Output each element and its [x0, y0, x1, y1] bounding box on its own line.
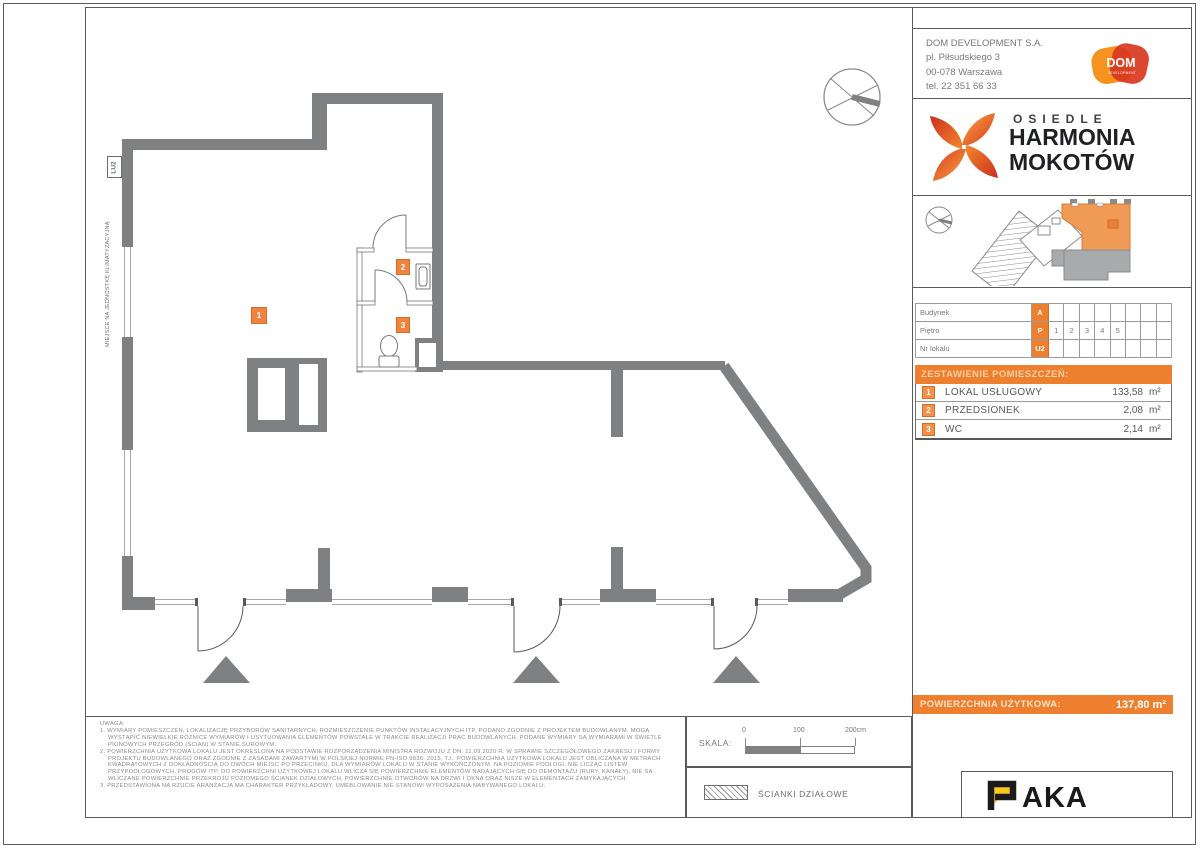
company-contact-block: DOM DEVELOPMENT S.A. pl. Piłsudskiego 3 … [926, 37, 1043, 95]
room-name: WC [945, 424, 1124, 435]
floor-value: P [1032, 322, 1049, 339]
table-row: 1 LOKAL USŁUGOWY 133,58 m² [916, 384, 1171, 402]
note-item: 3. PRZEDSTAWIONA NA RZUCIE ARANŻACJA MA … [100, 783, 677, 790]
scale-tick-200: 200cm [845, 727, 866, 734]
scale-tick-100: 100 [793, 727, 805, 734]
project-name-line2: MOKOTÓW [1009, 149, 1134, 176]
room-number-badge: 1 [922, 386, 935, 399]
site-mini-map [912, 196, 1190, 286]
svg-text:AKA: AKA [1022, 782, 1088, 814]
divider [912, 28, 1192, 29]
room-area: 133,58 [1112, 387, 1143, 398]
room-area: 2,08 [1124, 405, 1143, 416]
company-name: DOM DEVELOPMENT S.A. [926, 37, 1043, 51]
floor-plan-sheet: MIEJSCE NA JEDNOSTKĘ KLIMATYZACYJNĄ LU2 … [0, 0, 1200, 849]
room-name: PRZEDSIONEK [945, 405, 1124, 416]
table-row: Nr lokalu U2 [916, 340, 1172, 358]
company-address-1: pl. Piłsudskiego 3 [926, 51, 1043, 65]
total-area-label: POWIERZCHNIA UŻYTKOWA: [920, 699, 1116, 710]
note-item: 1. WYMIARY POMIESZCZEŃ, LOKALIZACJĘ PRZY… [100, 728, 677, 749]
table-row: 2 PRZEDSIONEK 2,08 m² [916, 402, 1171, 420]
rooms-table: 1 LOKAL USŁUGOWY 133,58 m² 2 PRZEDSIONEK… [915, 384, 1172, 440]
partition-legend-label: ŚCIANKI DZIAŁOWE [758, 789, 848, 799]
room-area-unit: m² [1149, 424, 1171, 435]
company-phone: tel. 22 351 66 33 [926, 80, 1043, 94]
rooms-table-header: ZESTAWIENIE POMIESZCZEŃ: [915, 365, 1172, 384]
scale-tick-mark [800, 738, 801, 746]
scale-tick-0: 0 [742, 727, 746, 734]
mini-north-icon [926, 207, 952, 233]
scale-bar-filled [745, 746, 800, 754]
divider [912, 98, 1192, 99]
room-number-badge: 2 [922, 404, 935, 417]
unit-info-table: Budynek A Piętro P 1 2 3 4 5 Nr lokalu U… [915, 303, 1172, 358]
scale-tick-mark [855, 738, 856, 746]
scale-label: SKALA: [699, 738, 732, 748]
company-address-2: 00-078 Warszawa [926, 66, 1043, 80]
room-area-unit: m² [1149, 387, 1171, 398]
total-area-value: 137,80 m² [1116, 699, 1166, 711]
building-value: A [1032, 304, 1049, 321]
room-area: 2,14 [1124, 424, 1143, 435]
project-name-line1: HARMONIA [1009, 124, 1136, 151]
svg-text:DOM: DOM [1106, 56, 1135, 70]
note-item: 2. POWIERZCHNIA UŻYTKOWA LOKALU JEST OKR… [100, 749, 677, 784]
dom-development-logo: DOM DEVELOPMENT [1088, 40, 1152, 88]
room-number-badge: 3 [922, 423, 935, 436]
scale-bar-empty [800, 746, 855, 754]
scale-tick-mark [745, 738, 746, 746]
table-row: Budynek A [916, 304, 1172, 322]
paka-logo: AKA [980, 776, 1110, 814]
room-area-unit: m² [1149, 405, 1171, 416]
divider [912, 287, 1192, 288]
notes-title: UWAGA: [100, 721, 677, 728]
svg-text:DEVELOPMENT: DEVELOPMENT [1108, 71, 1137, 75]
room-name: LOKAL USŁUGOWY [945, 387, 1112, 398]
partition-hatch-icon [704, 785, 748, 800]
table-row: 3 WC 2,14 m² [916, 420, 1171, 438]
notes-block: UWAGA: 1. WYMIARY POMIESZCZEŃ, LOKALIZAC… [85, 716, 686, 818]
harmonia-petals-icon [926, 106, 1002, 186]
total-area-bar: POWIERZCHNIA UŻYTKOWA: 137,80 m² [913, 695, 1173, 714]
table-row: Piętro P 1 2 3 4 5 [916, 322, 1172, 340]
unit-number-value: U2 [1032, 340, 1049, 357]
